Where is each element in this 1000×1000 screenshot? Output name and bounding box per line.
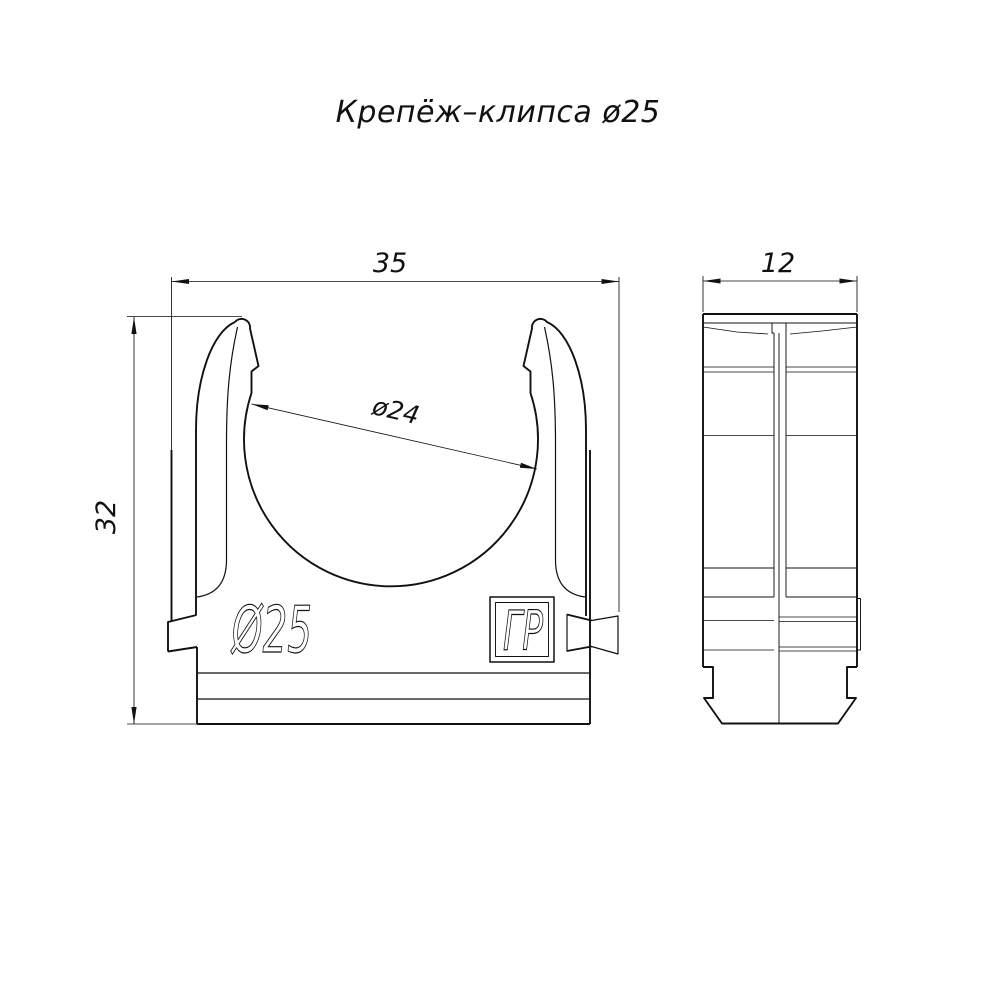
drawing-title: Крепёж–клипса ø25 [336, 95, 661, 130]
technical-drawing: Крепёж–клипса ø25 Ø25 ГР 35 [0, 0, 1000, 1000]
arrow-left-icon [703, 279, 721, 284]
arrow-down-icon [131, 707, 136, 724]
dim-width-35: 35 [172, 248, 620, 612]
dim-height-value: 32 [91, 500, 122, 534]
dim-bore-value: ø24 [369, 391, 422, 430]
latch-tooth-near-edges [567, 615, 592, 652]
dim-bore-diameter-24: ø24 [252, 391, 538, 469]
arrow-lower-right-icon [520, 463, 537, 469]
side-inner-edges [703, 323, 861, 724]
logo-text: ГР [503, 600, 543, 663]
side-view: 12 [703, 248, 861, 724]
arrow-right-icon [602, 279, 620, 284]
arrow-left-icon [172, 279, 190, 284]
embossed-marking: Ø25 [230, 594, 312, 668]
arrow-upper-left-icon [252, 404, 269, 410]
side-outer-contour [703, 314, 857, 724]
side-detail-lines [703, 327, 857, 651]
dim-depth-value: 12 [761, 248, 795, 279]
arrow-up-icon [131, 317, 136, 334]
base-rib-lines [197, 673, 590, 699]
manufacturer-logo: ГР [490, 597, 554, 663]
dim-width-lines [172, 277, 620, 612]
dim-height-32: 32 [91, 317, 242, 725]
arrow-right-icon [840, 279, 858, 284]
dim-height-lines [127, 317, 242, 725]
dim-depth-lines [703, 276, 857, 312]
drawing-sheet: { "title": "Крепёж–клипса ø25", "front_v… [0, 0, 1000, 1000]
dim-width-value: 35 [373, 248, 407, 279]
latch-tooth [567, 615, 618, 655]
dim-depth-12: 12 [703, 248, 857, 312]
front-view: Ø25 ГР 35 32 ø24 [91, 248, 619, 724]
